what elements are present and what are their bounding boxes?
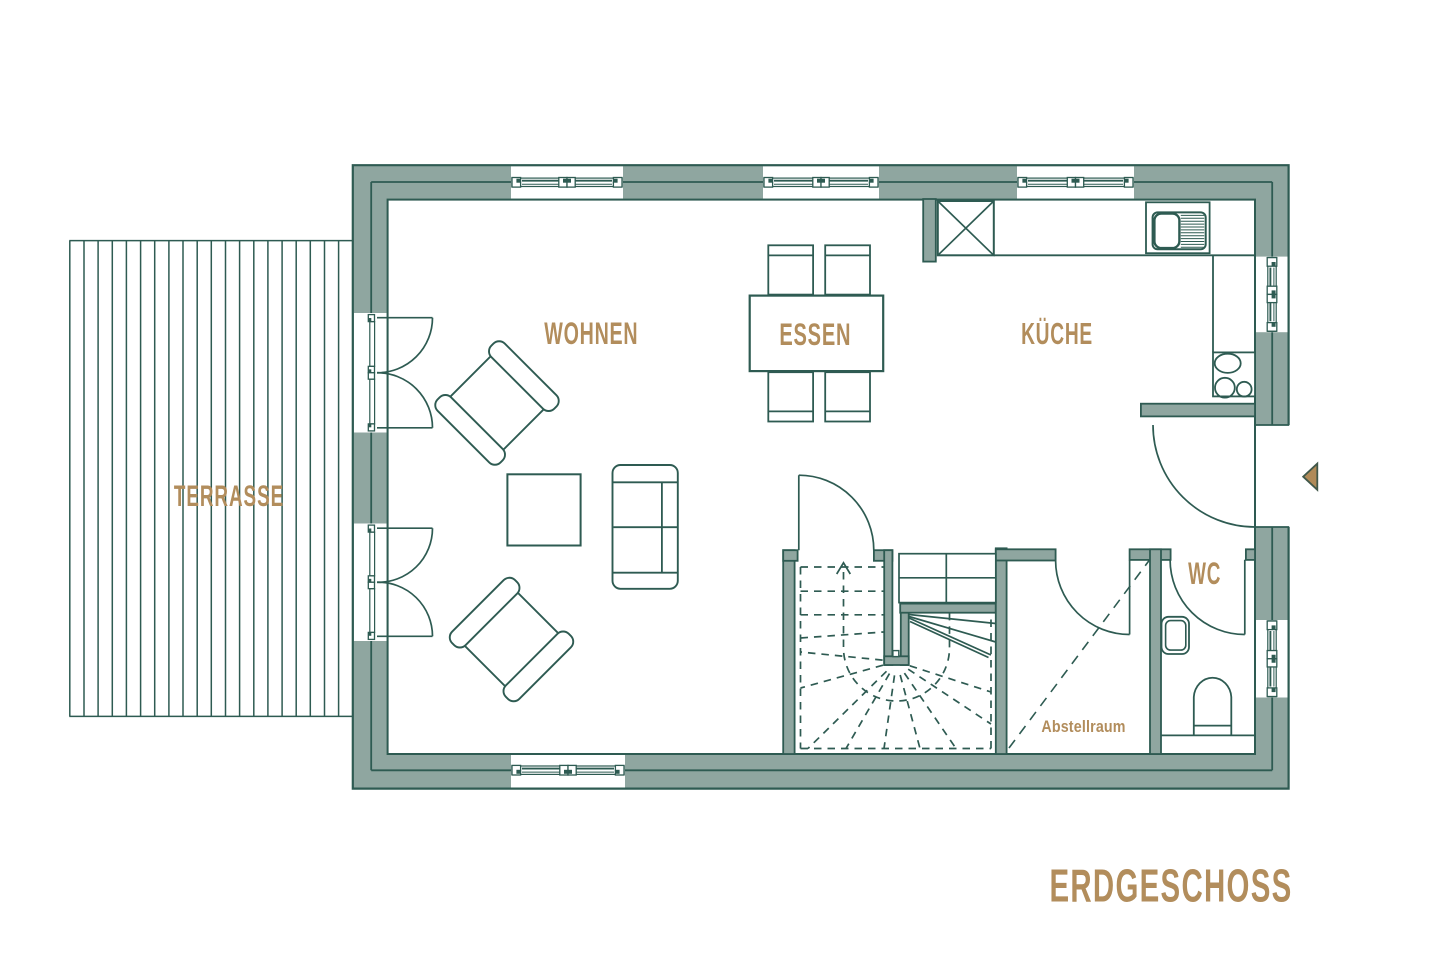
svg-text:ESSEN: ESSEN (779, 316, 851, 352)
svg-text:TERRASSE: TERRASSE (174, 481, 284, 513)
svg-text:WC: WC (1188, 555, 1221, 591)
svg-text:KÜCHE: KÜCHE (1021, 316, 1093, 351)
svg-text:WOHNEN: WOHNEN (544, 315, 638, 351)
svg-text:ERDGESCHOSS: ERDGESCHOSS (1049, 861, 1292, 912)
svg-text:Abstellraum: Abstellraum (1041, 718, 1125, 736)
